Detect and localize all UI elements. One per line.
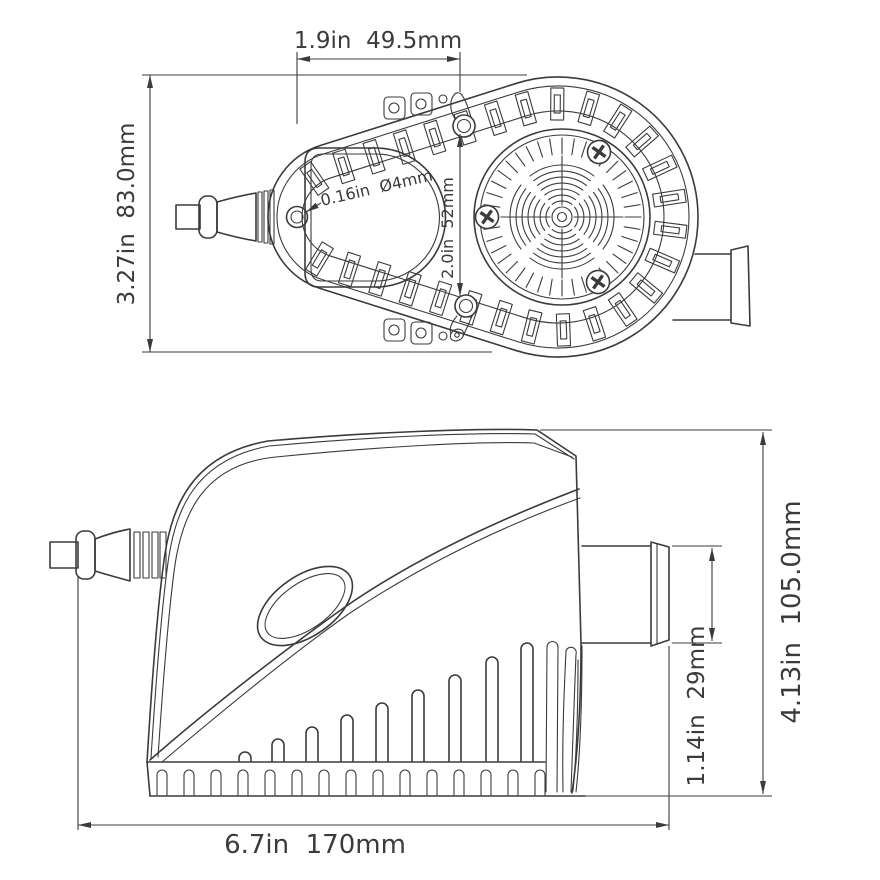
wire-stub-top-view (176, 205, 200, 229)
shell-rib-inner (374, 269, 385, 288)
lug-ring-top (453, 115, 475, 137)
strainer-tick (487, 236, 502, 241)
hole-4mm (291, 211, 303, 223)
dim-label-side-height: 4.13in 105.0mm (777, 500, 807, 723)
skirt-slot (346, 770, 356, 795)
shell-rib (608, 293, 637, 327)
skirt-slot (319, 770, 329, 795)
shell-rib-inner (312, 250, 326, 269)
skirt-slot (535, 770, 545, 795)
dim-label-hole-spacing: 2.0in 52mm (438, 177, 457, 279)
cable-connector-side-view (50, 529, 166, 581)
strainer-tick (550, 279, 553, 295)
strainer-spokes (501, 156, 623, 278)
strainer-tick (613, 254, 626, 263)
lug-ring-bottom (455, 295, 477, 317)
base-skirt-slots (157, 770, 545, 795)
shell-rib (551, 88, 564, 120)
dim-label-length: 6.7in 170mm (224, 830, 406, 860)
strainer-center-hole (558, 213, 567, 222)
connector-taper-side-view (95, 529, 130, 581)
shell-rib (654, 221, 687, 238)
strainer-tick (613, 171, 626, 180)
strainer-tick (581, 142, 586, 157)
skirt-slot (481, 770, 491, 795)
skirt-slot (265, 770, 275, 795)
face-curve (150, 489, 579, 760)
strainer-tick (492, 246, 506, 253)
pump-technical-drawing: 1.9in 49.5mm 3.27in 83.0mm 2.0in 52mm 0.… (0, 0, 880, 880)
base-left-edge (147, 762, 150, 796)
phillips-screw-icon (582, 266, 614, 298)
strainer-tick (624, 205, 640, 208)
strainer-tick (607, 262, 618, 273)
strainer-tick (498, 254, 511, 263)
shell-rib-inner (615, 300, 630, 318)
outlet-lip-top-view (731, 246, 750, 326)
fin-slot (376, 703, 388, 761)
dim-label-top-width: 1.9in 49.5mm (294, 28, 462, 54)
skirt-slot (184, 770, 194, 795)
shell-rib (556, 314, 570, 346)
fin-slot (272, 739, 284, 761)
corner-fins (546, 642, 582, 793)
connector-flange-top-view (199, 196, 217, 238)
strainer-tick (550, 139, 553, 155)
oval-recess-outer (244, 550, 367, 661)
face-curve-double (162, 498, 580, 762)
fin-slot (486, 657, 498, 761)
fin-slot (341, 715, 353, 761)
strainer-outer-circle (474, 129, 650, 305)
fin-slot (239, 752, 251, 761)
skirt-slot (292, 770, 302, 795)
strainer-tick (572, 139, 575, 155)
strainer-tick (516, 268, 525, 281)
strainer-tick (572, 279, 575, 295)
bilge-pump-dimension-drawing: 1.9in 49.5mm 3.27in 83.0mm 2.0in 52mm 0.… (0, 0, 880, 880)
cable-connector-top-view (176, 190, 274, 244)
skirt-slot (508, 770, 518, 795)
shell-rib (643, 155, 677, 180)
strainer-tick (622, 193, 637, 198)
outlet-barb-side-view (582, 542, 669, 646)
fin-slot (449, 675, 461, 761)
shell-rib-inner (589, 314, 600, 333)
leader-line-hole (306, 203, 321, 212)
shell-rib (369, 262, 391, 296)
outlet-lip-side-view (651, 542, 669, 646)
body-outline (147, 429, 581, 793)
shell-rib (484, 101, 506, 135)
strainer-grille (471, 129, 650, 305)
shell-rib-inner (560, 321, 567, 339)
body-inner-wall (158, 443, 572, 757)
shell-rib (393, 130, 415, 164)
shell-rib (653, 189, 687, 207)
shell-rib (521, 310, 541, 344)
fin-slot (412, 690, 424, 761)
strainer-tick (526, 273, 533, 287)
phillips-screw-icon (583, 136, 615, 168)
strainer-hub-circle (552, 207, 572, 227)
strainer-tick (624, 227, 640, 230)
strainer-tick (498, 171, 511, 180)
skirt-slot (373, 770, 383, 795)
skirt-slot (157, 770, 167, 795)
strainer-tick (618, 246, 632, 253)
strainer-tick (492, 181, 506, 188)
strainer-tick (538, 142, 543, 157)
wire-stub-side-view (50, 542, 78, 568)
phillips-screw-icon (471, 201, 503, 233)
dim-label-outlet: 1.14in 29mm (684, 626, 710, 787)
strainer-tick (506, 161, 517, 172)
skirt-slot (238, 770, 248, 795)
dim-label-top-height: 3.27in 83.0mm (114, 123, 140, 306)
connector-ribs-side-view (134, 532, 166, 578)
lug-tail-hole (455, 333, 459, 337)
skirt-slot (400, 770, 410, 795)
skirt-slot (454, 770, 464, 795)
shell-rib-inner (633, 133, 651, 149)
connector-flange-side-view (76, 531, 95, 579)
shell-rib (515, 92, 536, 126)
shell-rib-inner (637, 280, 655, 296)
shell-rib (306, 242, 334, 276)
shell-rib (399, 272, 421, 306)
strainer-tick (618, 181, 632, 188)
strainer-tick (607, 161, 618, 172)
skirt-slot (427, 770, 437, 795)
shell-rib (490, 300, 512, 334)
strainer-tick (487, 193, 502, 198)
connector-ribs-top-view (258, 190, 274, 244)
shell-rib-inner (307, 169, 322, 187)
connector-taper-top-view (217, 193, 256, 241)
strainer-tick (538, 277, 543, 292)
skirt-slot (211, 770, 221, 795)
shell-rib (363, 140, 385, 174)
fin-slot (306, 727, 318, 761)
fin-slot (521, 643, 533, 761)
strainer-fins (239, 643, 533, 761)
strainer-tick (516, 153, 525, 166)
shell-rib (430, 281, 452, 315)
shell-rib-inner (554, 95, 560, 113)
shell-rib (630, 273, 663, 303)
shell-rib (578, 91, 600, 125)
shell-rib-inner (610, 112, 625, 130)
strainer-tick (506, 262, 517, 273)
shell-rib (583, 307, 605, 341)
top-view (176, 77, 750, 357)
strainer-tick (622, 236, 637, 241)
strainer-tick (526, 147, 533, 161)
strainer-tick (581, 277, 586, 292)
shell-rib (604, 104, 632, 138)
outlet-barb-top-view (673, 246, 750, 326)
side-view (50, 429, 669, 796)
oval-recess-inner (254, 561, 356, 651)
shell-rib (424, 120, 446, 154)
